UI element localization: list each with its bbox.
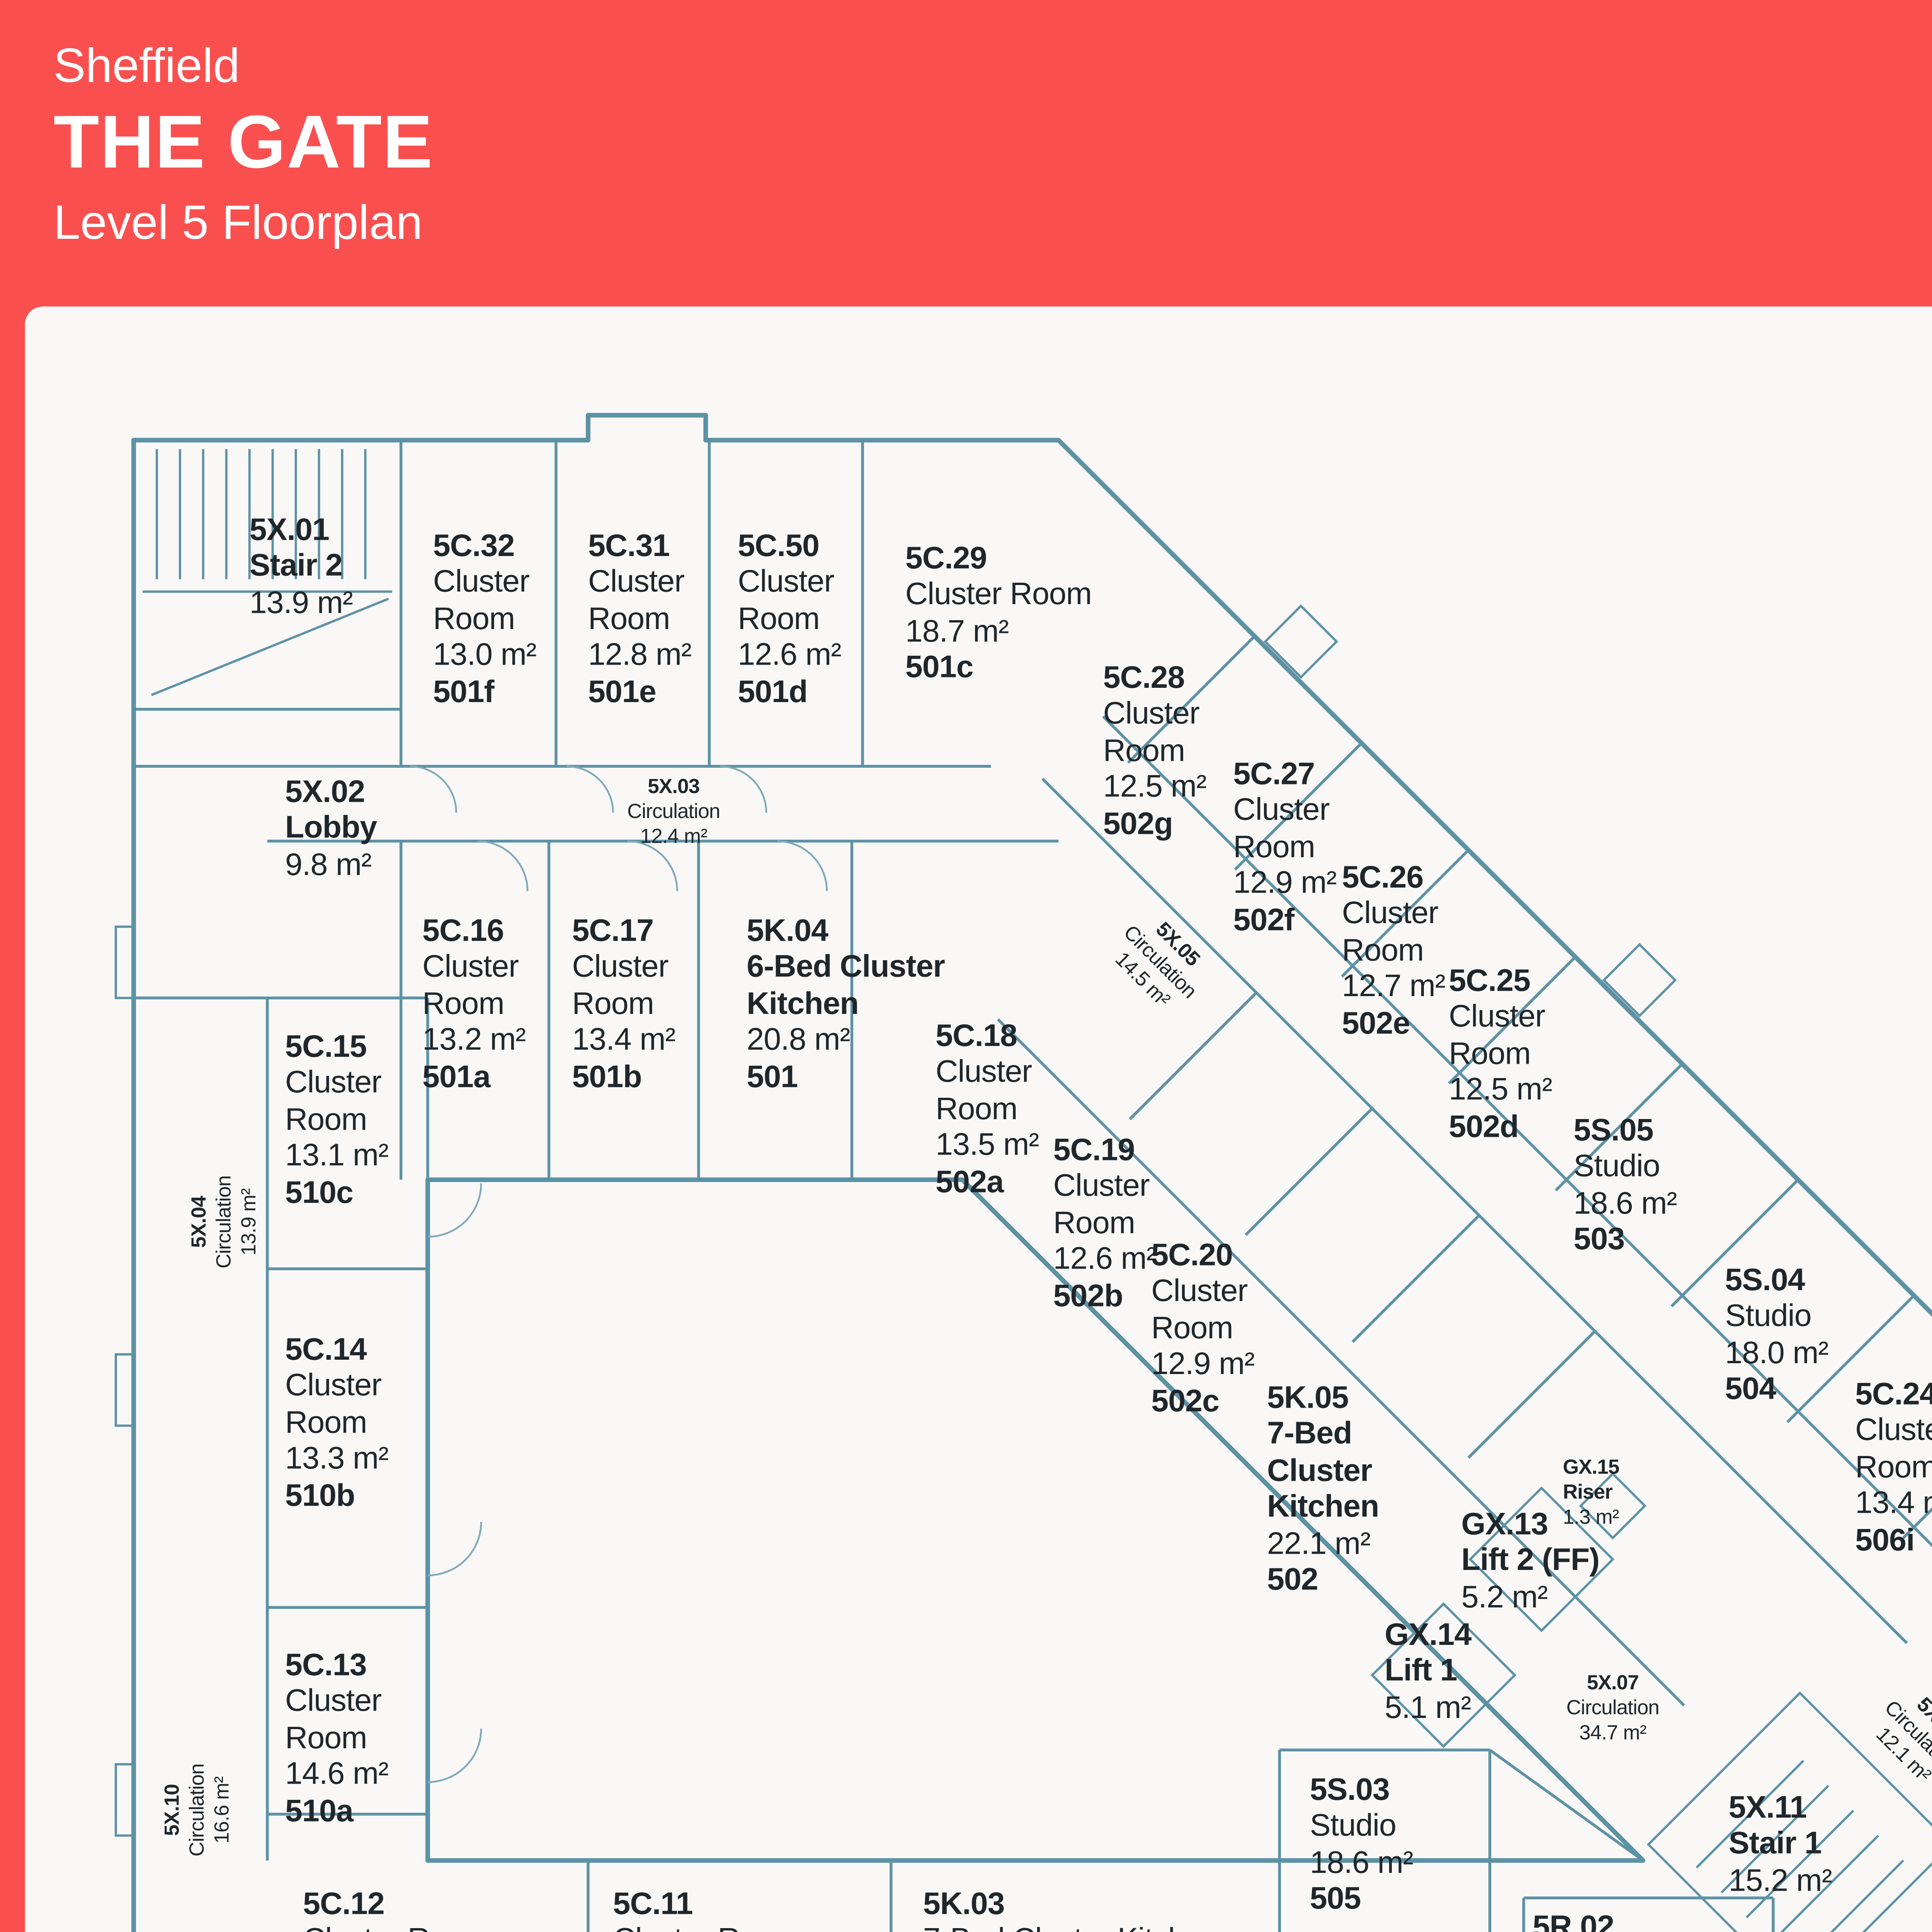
room-area: 12.6 m²	[738, 637, 848, 673]
room-name: Cluster Room	[588, 564, 699, 637]
room-name: 7-Bed Cluster Kitchen	[1267, 1416, 1463, 1525]
room-unit: 502	[1267, 1562, 1463, 1598]
room-unit: 502f	[1233, 901, 1344, 938]
room-code: 5R.02	[1532, 1908, 1768, 1932]
room-label-5C31: 5C.31Cluster Room12.8 m²501e	[588, 527, 699, 710]
room-area: 13.4 m²	[572, 1022, 682, 1058]
room-name: Studio	[1573, 1148, 1716, 1185]
room-code: 5S.04	[1725, 1262, 1867, 1298]
room-code: 5X.04	[189, 1165, 214, 1279]
room-area: 12.4 m²	[615, 826, 732, 851]
room-code: 5C.18	[935, 1017, 1046, 1054]
room-name: Circulation	[615, 801, 732, 826]
room-name: Cluster Room	[1053, 1168, 1164, 1241]
room-label-5C26: 5C.26Cluster Room12.7 m²502e	[1342, 859, 1452, 1041]
room-label-5X10: 5X.10Circulation16.6 m²	[163, 1753, 236, 1867]
room-unit: 502e	[1342, 1005, 1452, 1041]
room-label-5C19: 5C.19Cluster Room12.6 m²502b	[1053, 1132, 1164, 1314]
room-label-5C11: 5C.11Cluster Room13.3 m²509f	[613, 1885, 820, 1932]
room-unit: 510c	[285, 1174, 396, 1211]
room-code: 5X.07	[1552, 1673, 1673, 1698]
room-unit: 510b	[285, 1477, 396, 1514]
room-area: 12.9 m²	[1233, 865, 1344, 901]
room-area: 13.5 m²	[935, 1127, 1046, 1163]
room-name: Circulation	[187, 1753, 212, 1867]
room-unit: 501c	[905, 650, 1105, 686]
room-name: Cluster Room	[285, 1683, 396, 1756]
room-label-5K03: 5K.037-Bed Cluster Kitchen23.5 m²509	[923, 1885, 1247, 1932]
room-code: 5X.10	[163, 1753, 187, 1867]
room-label-5C29: 5C.29Cluster Room18.7 m²501c	[905, 540, 1105, 686]
room-code: 5C.15	[285, 1028, 396, 1065]
room-label-5K04: 5K.046-Bed Cluster Kitchen20.8 m²501	[747, 912, 950, 1095]
room-area: 20.8 m²	[747, 1022, 950, 1058]
room-code: 5C.31	[588, 527, 699, 564]
room-name: Cluster Room	[433, 564, 544, 637]
room-name: Cluster Room	[1103, 696, 1214, 769]
room-name: Circulation	[1552, 1698, 1673, 1723]
room-name: Cluster Room	[285, 1368, 396, 1441]
room-name: Cluster Room	[1449, 999, 1560, 1072]
room-area: 18.0 m²	[1725, 1335, 1867, 1371]
room-code: 5C.50	[738, 527, 848, 564]
room-label-5C14: 5C.14Cluster Room13.3 m²510b	[285, 1331, 396, 1514]
room-code: 5C.28	[1103, 659, 1214, 696]
room-label-5C32: 5C.32Cluster Room13.0 m²501f	[433, 527, 544, 710]
room-name: Cluster Room	[905, 577, 1105, 613]
room-unit: 501d	[738, 673, 848, 710]
room-name: Stair 2	[250, 548, 399, 584]
room-label-5S03: 5S.03Studio18.6 m²505	[1310, 1771, 1452, 1917]
room-name: Cluster Room	[303, 1922, 510, 1932]
room-code: 5X.01	[250, 512, 399, 548]
room-label-5C15: 5C.15Cluster Room13.1 m²510c	[285, 1028, 396, 1211]
room-area: 5.1 m²	[1385, 1689, 1495, 1726]
room-area: 13.4 m²	[1855, 1485, 1932, 1522]
room-name: Cluster Room	[1151, 1273, 1262, 1346]
room-label-5X03: 5X.03Circulation12.4 m²	[615, 777, 732, 851]
room-name: Cluster Room	[572, 949, 682, 1022]
room-label-5C18: 5C.18Cluster Room13.5 m²502a	[935, 1017, 1046, 1200]
room-unit: 501	[747, 1058, 950, 1095]
room-unit: 504	[1725, 1371, 1867, 1408]
room-area: 5.2 m²	[1461, 1579, 1625, 1615]
room-area: 22.1 m²	[1267, 1525, 1463, 1561]
room-area: 9.8 m²	[285, 846, 410, 883]
room-unit: 501f	[433, 673, 544, 710]
room-area: 12.5 m²	[1103, 769, 1214, 805]
room-unit: 502d	[1449, 1108, 1560, 1145]
room-code: 5C.24	[1855, 1376, 1932, 1412]
room-unit: 501b	[572, 1058, 682, 1095]
room-code: 5K.04	[747, 912, 950, 949]
room-name: Cluster Room	[1233, 792, 1344, 865]
room-area: 13.9 m²	[250, 584, 399, 621]
room-code: 5C.13	[285, 1646, 396, 1683]
room-area: 12.5 m²	[1449, 1072, 1560, 1108]
room-code: GX.14	[1385, 1616, 1495, 1653]
room-label-5S05: 5S.05Studio18.6 m²503	[1573, 1112, 1716, 1258]
room-name: Cluster Room	[613, 1922, 820, 1932]
room-unit: 505	[1310, 1881, 1452, 1917]
room-name: Lift 2 (FF)	[1461, 1543, 1625, 1579]
room-code: GX.15	[1563, 1458, 1656, 1483]
room-unit: 502b	[1053, 1277, 1164, 1314]
room-code: 5C.11	[613, 1885, 820, 1922]
room-code: 5C.32	[433, 527, 544, 564]
room-area: 12.8 m²	[588, 637, 699, 673]
room-code: 5C.29	[905, 540, 1105, 576]
room-code: 5C.27	[1233, 755, 1344, 792]
room-unit: 502c	[1151, 1383, 1262, 1419]
room-code: 5X.03	[615, 777, 732, 802]
room-area: 13.1 m²	[285, 1138, 396, 1174]
room-label-5C13: 5C.13Cluster Room14.6 m²510a	[285, 1646, 396, 1829]
room-area: 12.7 m²	[1342, 968, 1452, 1005]
floorplan-drawing	[0, 0, 1932, 1932]
room-label-5R02: 5R.02Cleaners Store11.1 m²	[1532, 1908, 1768, 1932]
room-area: 34.7 m²	[1552, 1723, 1673, 1747]
room-label-5C24: 5C.24Cluster Room13.4 m²506i	[1855, 1376, 1932, 1558]
room-label-5C20: 5C.20Cluster Room12.9 m²502c	[1151, 1237, 1262, 1419]
room-label-5C25: 5C.25Cluster Room12.5 m²502d	[1449, 962, 1560, 1145]
room-unit: 501a	[422, 1058, 533, 1095]
room-name: Studio	[1310, 1808, 1452, 1844]
room-name: Cluster Room	[935, 1054, 1046, 1127]
room-code: 5C.20	[1151, 1237, 1262, 1273]
room-label-5C50: 5C.50Cluster Room12.6 m²501d	[738, 527, 848, 710]
room-label-5C16: 5C.16Cluster Room13.2 m²501a	[422, 912, 533, 1095]
room-name: 7-Bed Cluster Kitchen	[923, 1922, 1247, 1932]
room-area: 13.3 m²	[285, 1440, 396, 1477]
room-name: Lift 1	[1385, 1653, 1495, 1689]
room-area: 18.6 m²	[1573, 1185, 1716, 1221]
room-name: Lobby	[285, 810, 410, 846]
room-area: 14.6 m²	[285, 1756, 396, 1793]
room-label-GX13: GX.13Lift 2 (FF)5.2 m²	[1461, 1506, 1625, 1615]
room-code: 5S.03	[1310, 1771, 1452, 1808]
room-unit: 502g	[1103, 805, 1214, 842]
room-name: Stair 1	[1729, 1826, 1857, 1862]
room-area: 18.7 m²	[905, 613, 1105, 649]
room-name: Studio	[1725, 1298, 1867, 1335]
room-unit: 506i	[1855, 1522, 1932, 1558]
room-label-5C28: 5C.28Cluster Room12.5 m²502g	[1103, 659, 1214, 842]
room-label-5X04: 5X.04Circulation13.9 m²	[189, 1165, 263, 1279]
room-code: 5S.05	[1573, 1112, 1716, 1148]
room-area: 15.2 m²	[1729, 1862, 1857, 1898]
room-name: Riser	[1563, 1482, 1656, 1507]
room-name: Cluster Room	[738, 564, 848, 637]
floorplan-page: Sheffield THE GATE Level 5 Floorplan	[0, 0, 1932, 1932]
room-code: GX.13	[1461, 1506, 1625, 1542]
room-name: Cluster Room	[422, 949, 533, 1022]
room-label-5K05: 5K.057-Bed Cluster Kitchen22.1 m²502	[1267, 1379, 1463, 1598]
room-name: Cluster Room	[1855, 1412, 1932, 1485]
room-label-5X01: 5X.01Stair 213.9 m²	[250, 512, 399, 621]
room-unit: 502a	[935, 1163, 1046, 1200]
room-code: 5K.05	[1267, 1379, 1463, 1416]
room-label-5X07: 5X.07Circulation34.7 m²	[1552, 1673, 1673, 1747]
room-name: 6-Bed Cluster Kitchen	[747, 949, 950, 1022]
room-area: 12.6 m²	[1053, 1241, 1164, 1277]
room-code: 5C.14	[285, 1331, 396, 1367]
room-code: 5C.19	[1053, 1132, 1164, 1168]
room-code: 5C.16	[422, 912, 533, 949]
room-label-5S04: 5S.04Studio18.0 m²504	[1725, 1262, 1867, 1408]
room-name: Circulation	[214, 1165, 239, 1279]
room-label-5X11: 5X.11Stair 115.2 m²	[1729, 1789, 1857, 1898]
room-code: 5X.11	[1729, 1789, 1857, 1825]
room-name: Cluster Room	[1342, 895, 1452, 968]
room-label-5C27: 5C.27Cluster Room12.9 m²502f	[1233, 755, 1344, 938]
room-code: 5X.02	[285, 774, 410, 810]
room-code: 5C.26	[1342, 859, 1452, 895]
room-label-GX14: GX.14Lift 15.1 m²	[1385, 1616, 1495, 1726]
room-area: 13.9 m²	[239, 1165, 264, 1279]
room-area: 13.2 m²	[422, 1022, 533, 1058]
room-unit: 510a	[285, 1793, 396, 1829]
room-label-5C17: 5C.17Cluster Room13.4 m²501b	[572, 912, 682, 1095]
room-code: 5C.25	[1449, 962, 1560, 998]
room-area: 16.6 m²	[212, 1753, 236, 1867]
room-label-5C12: 5C.12Cluster Room13.5 m²509g	[303, 1885, 510, 1932]
room-code: 5K.03	[923, 1885, 1247, 1922]
room-unit: 503	[1573, 1221, 1716, 1258]
room-label-5X02: 5X.02Lobby9.8 m²	[285, 774, 410, 883]
room-unit: 501e	[588, 673, 699, 710]
room-name: Cluster Room	[285, 1065, 396, 1138]
room-code: 5C.12	[303, 1885, 510, 1922]
room-area: 12.9 m²	[1151, 1346, 1262, 1383]
room-code: 5C.17	[572, 912, 682, 949]
room-area: 18.6 m²	[1310, 1844, 1452, 1881]
room-area: 13.0 m²	[433, 637, 544, 673]
